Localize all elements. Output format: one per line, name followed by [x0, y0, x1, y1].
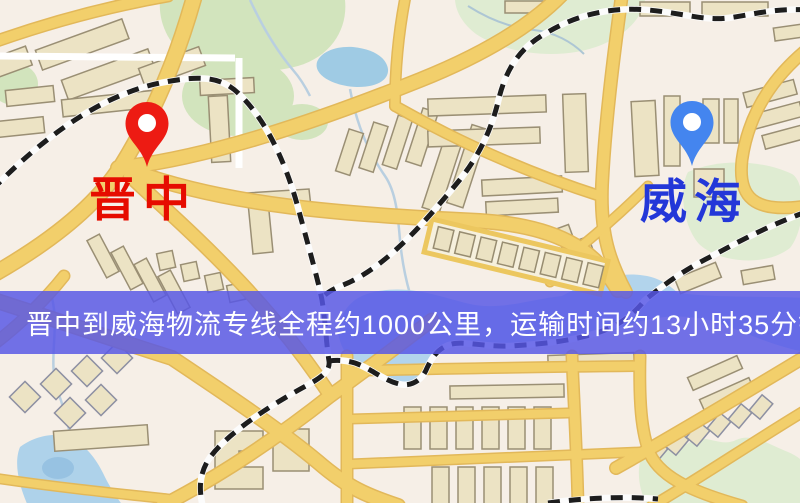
map-pin-icon	[123, 99, 171, 171]
map-view[interactable]: 晋中 威海 晋中到威海物流专线全程约1000公里，运输时间约13小时35分钟.	[0, 0, 800, 503]
map-canvas	[0, 0, 800, 503]
destination-label: 威海	[640, 178, 748, 225]
origin-pin[interactable]	[123, 99, 171, 171]
map-pin-icon	[668, 98, 716, 170]
destination-pin[interactable]	[668, 98, 716, 170]
route-info-text: 晋中到威海物流专线全程约1000公里，运输时间约13小时35分钟.	[0, 303, 800, 342]
route-info-banner: 晋中到威海物流专线全程约1000公里，运输时间约13小时35分钟.	[0, 291, 800, 354]
origin-label: 晋中	[89, 176, 197, 223]
